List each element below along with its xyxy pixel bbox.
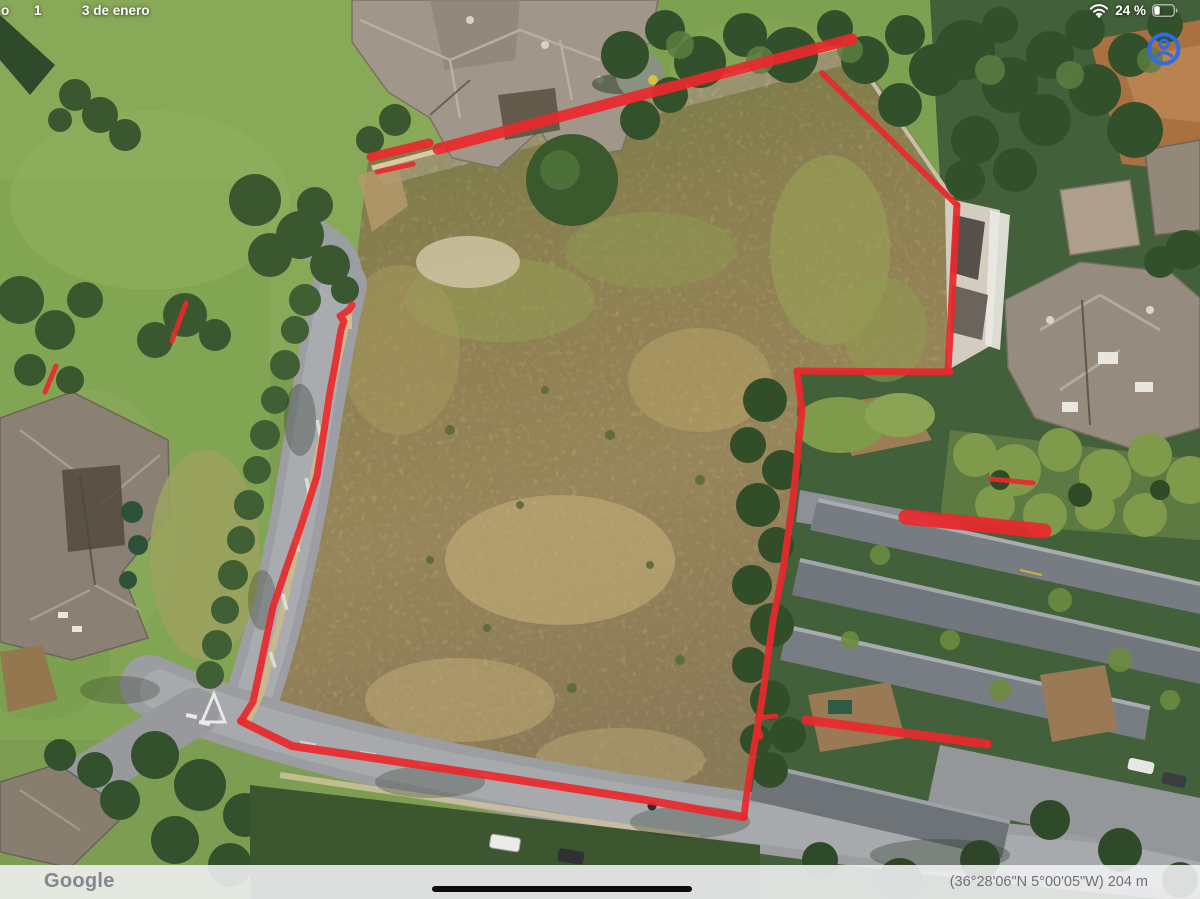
pegman-icon[interactable]: [1145, 30, 1183, 68]
status-day: 1: [34, 3, 42, 18]
wifi-icon: [1089, 3, 1109, 18]
status-date: 3 de enero: [82, 3, 150, 18]
battery-percent: 24 %: [1115, 3, 1146, 18]
google-logo: Google: [44, 870, 115, 893]
battery-icon: [1152, 4, 1178, 17]
home-indicator[interactable]: [432, 886, 692, 892]
google-earth-screen: o 1 3 de enero 24 % Google: [0, 0, 1200, 899]
status-time-fragment: o: [1, 3, 9, 18]
coordinates-readout: (36°28'06"N 5°00'05"W) 204 m: [950, 874, 1148, 890]
status-bar: o 1 3 de enero 24 %: [0, 2, 1200, 22]
satellite-map[interactable]: [0, 0, 1200, 899]
footer-bar: Google (36°28'06"N 5°00'05"W) 204 m: [0, 865, 1200, 899]
